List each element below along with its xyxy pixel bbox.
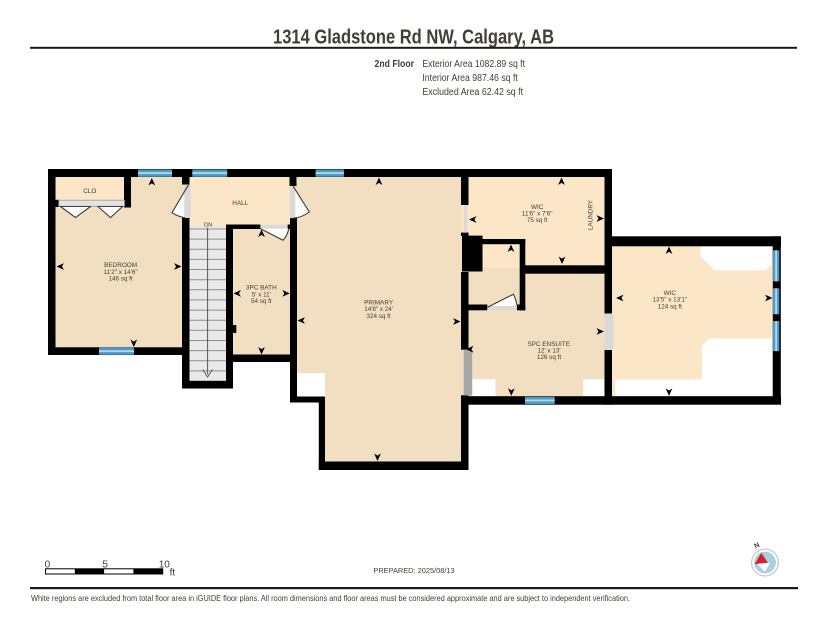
svg-text:5: 5 (102, 560, 108, 571)
svg-text:324 sq ft: 324 sq ft (367, 313, 391, 320)
svg-text:146 sq ft: 146 sq ft (109, 276, 133, 283)
svg-text:10: 10 (159, 560, 171, 571)
svg-text:BEDROOM: BEDROOM (104, 262, 137, 269)
svg-text:54 sq ft: 54 sq ft (251, 298, 272, 305)
svg-text:CLO: CLO (83, 188, 96, 195)
svg-text:0: 0 (45, 560, 51, 571)
svg-text:PREPARED: 2025/08/13: PREPARED: 2025/08/13 (373, 566, 454, 575)
svg-text:75 sq ft: 75 sq ft (527, 217, 548, 224)
svg-text:DN: DN (204, 223, 212, 229)
svg-text:126 sq ft: 126 sq ft (537, 354, 561, 361)
svg-text:White regions are excluded fro: White regions are excluded from total fl… (31, 593, 630, 603)
svg-text:LAUNDRY: LAUNDRY (588, 199, 595, 230)
svg-text:Interior Area 987.46 sq ft: Interior Area 987.46 sq ft (422, 73, 518, 84)
svg-text:Exterior Area 1082.89 sq ft: Exterior Area 1082.89 sq ft (422, 59, 525, 70)
svg-text:ft: ft (170, 567, 176, 578)
svg-text:124 sq ft: 124 sq ft (658, 303, 682, 310)
svg-text:Excluded Area 62.42 sq ft: Excluded Area 62.42 sq ft (422, 87, 523, 98)
svg-text:2nd Floor: 2nd Floor (375, 59, 415, 70)
svg-text:1314 Gladstone Rd NW, Calgary,: 1314 Gladstone Rd NW, Calgary, AB (273, 25, 554, 48)
svg-text:HALL: HALL (232, 200, 248, 207)
